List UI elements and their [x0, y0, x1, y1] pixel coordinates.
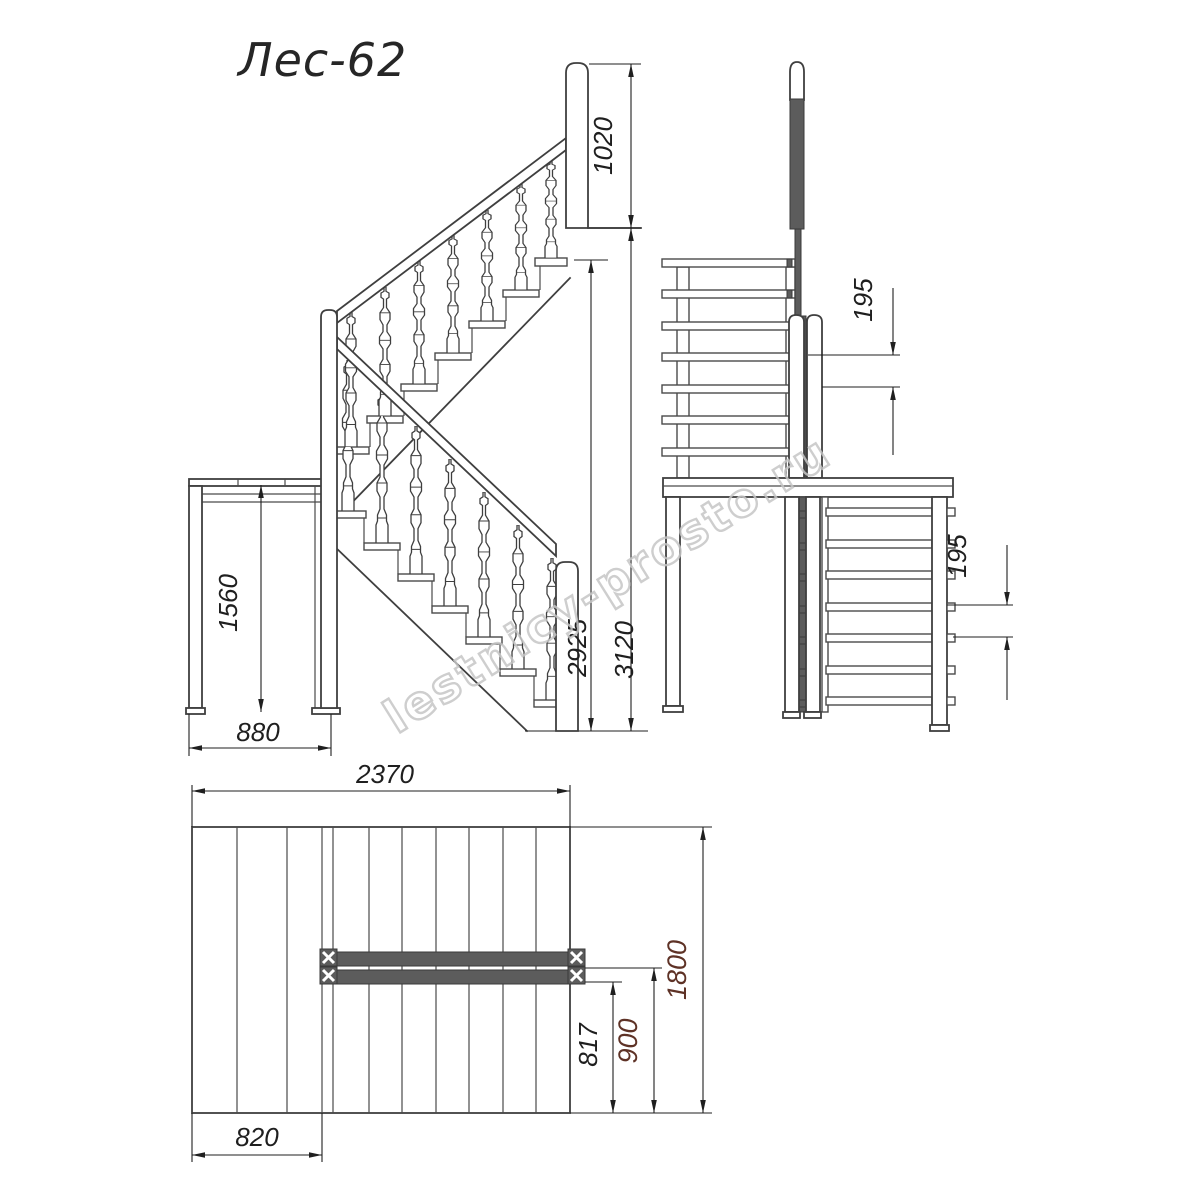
dim-label-195-upper: 195	[848, 278, 878, 322]
landing-left-foot	[186, 708, 205, 714]
plan-handrail	[320, 949, 585, 984]
dim-label-195-lower: 195	[942, 534, 972, 578]
top-newel-post	[566, 63, 588, 228]
dim-label-1800: 1800	[662, 940, 692, 1000]
landing-deck	[189, 479, 335, 486]
front-upper-ladder	[662, 259, 795, 478]
dim-label-1560: 1560	[213, 574, 243, 632]
dim-label-3120: 3120	[609, 621, 639, 679]
dark-post-body	[790, 99, 804, 229]
dark-post-neck	[795, 229, 801, 316]
mid-newel-post	[321, 310, 337, 708]
top-landing-tread	[535, 258, 567, 266]
front-view: 195 195	[662, 62, 1013, 731]
dim-label-900: 900	[613, 1018, 643, 1063]
plan-rail-upper	[337, 952, 568, 966]
front-lower-ladder	[822, 497, 955, 731]
dim-label-2370: 2370	[355, 759, 414, 789]
blueprint-canvas: 1020 3120 2925 1560 880	[0, 0, 1200, 1200]
dark-post-cap	[790, 62, 804, 100]
front-lower-right-stringer	[932, 497, 947, 725]
front-mid-leg-b	[806, 497, 820, 712]
watermark: lestnicy-prosto.ru	[374, 424, 840, 743]
plan-rail-lower	[337, 970, 568, 984]
dim-label-817: 817	[573, 1022, 603, 1067]
dim-label-820: 820	[235, 1122, 279, 1152]
front-mid-leg-a	[785, 497, 799, 712]
dark-strip-lower	[799, 497, 806, 712]
front-left-foot	[663, 706, 683, 712]
staircase-drawing: 1020 3120 2925 1560 880	[0, 0, 1200, 1200]
dim-label-880: 880	[236, 717, 280, 747]
dim-label-1020: 1020	[588, 117, 618, 175]
upper-flight-balusters	[345, 161, 557, 447]
plan-dim-2370	[192, 785, 570, 827]
drawing-title: Лес-62	[236, 33, 407, 87]
side-landing-platform	[186, 479, 340, 714]
front-right-foot	[930, 725, 949, 731]
plan-view: 2370 820 1800 900 817	[192, 759, 712, 1162]
landing-left-leg	[189, 486, 202, 708]
side-view: 1020 3120 2925 1560 880	[186, 63, 648, 756]
